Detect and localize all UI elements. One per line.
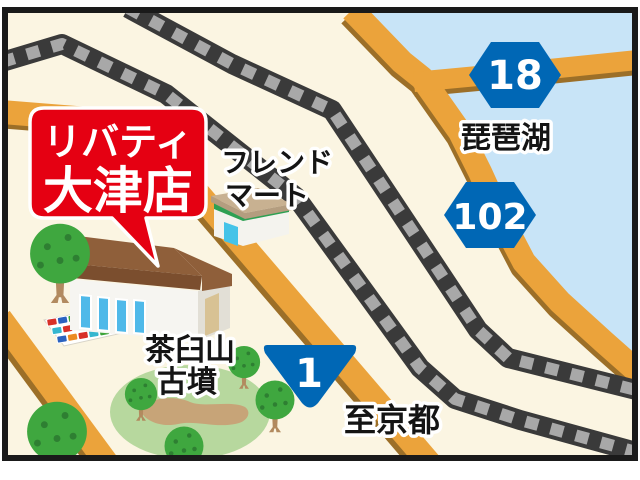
route-badge-18-number: 18 xyxy=(487,53,543,99)
route-badge-102-number: 102 xyxy=(452,197,527,238)
friend-mart-label-line1: フレンド xyxy=(221,146,333,179)
map-screenshot: リバティ 大津店 18 102 1 フレンド マート 琵琶湖 茶臼山 古墳 至京… xyxy=(0,0,640,480)
store-access-map: リバティ 大津店 18 102 1 フレンド マート 琵琶湖 茶臼山 古墳 至京… xyxy=(0,0,640,480)
route-badge-1-number: 1 xyxy=(295,351,323,397)
kofun-label-line2: 古墳 xyxy=(157,365,217,400)
store-sign-line2: 大津店 xyxy=(43,162,193,220)
store-sign-line1: リバティ xyxy=(43,120,193,164)
to-kyoto-label: 至京都 xyxy=(344,401,440,439)
lake-biwa-label: 琵琶湖 xyxy=(461,121,551,156)
kofun-label-line1: 茶臼山 xyxy=(145,333,235,368)
friend-mart-label-line2: マート xyxy=(225,179,309,212)
